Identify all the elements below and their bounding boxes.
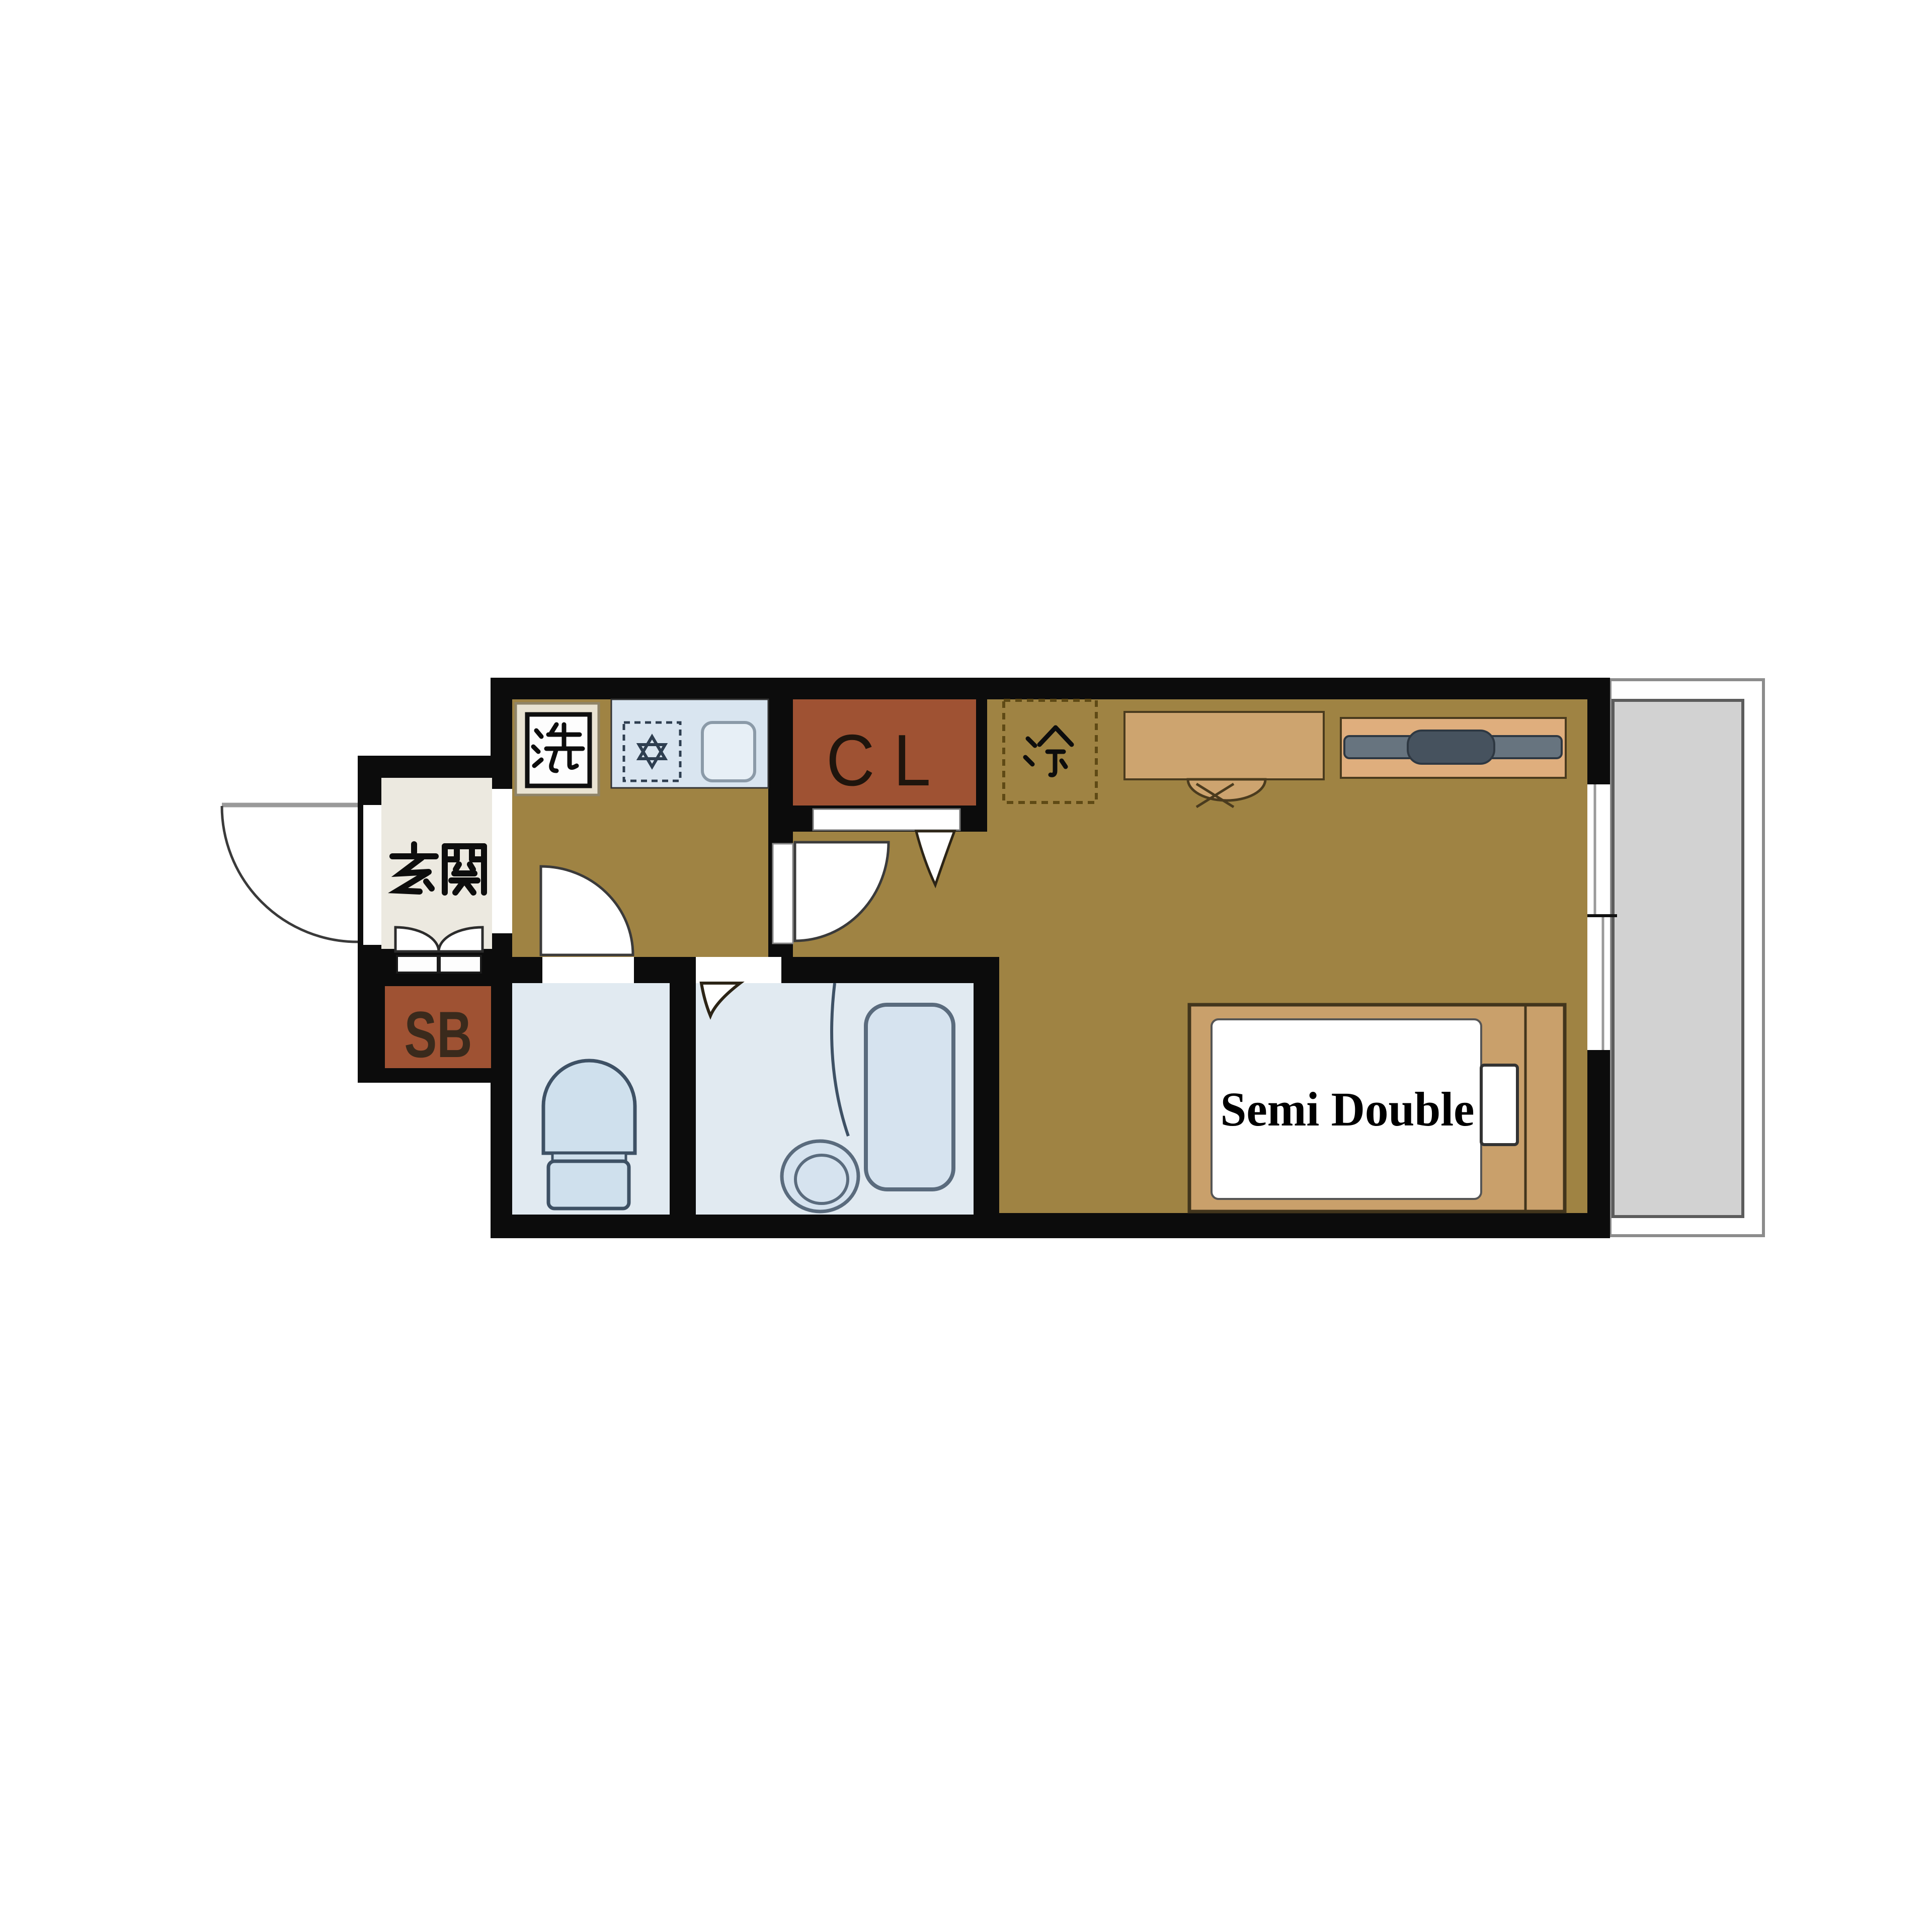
svg-text:C L: C L — [826, 719, 931, 801]
svg-text:Semi Double: Semi Double — [1221, 1082, 1475, 1136]
svg-text:SB: SB — [405, 998, 472, 1071]
